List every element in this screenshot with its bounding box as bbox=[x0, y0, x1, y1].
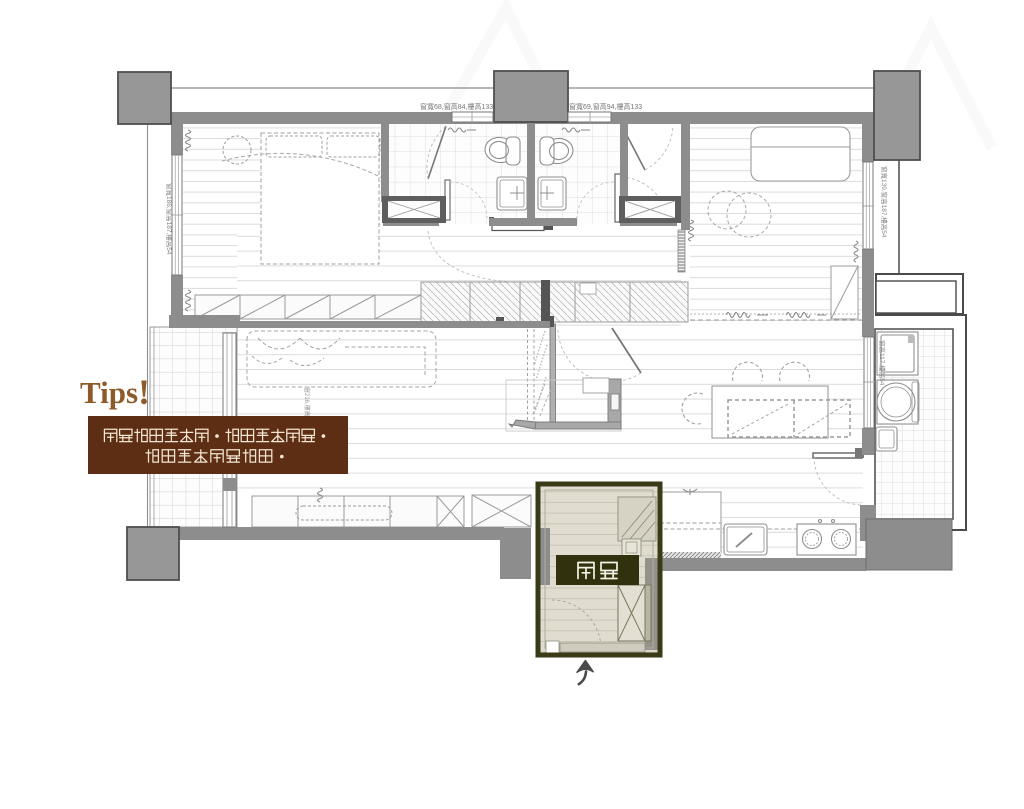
svg-text:窗寬139,窗高187,樓高54: 窗寬139,窗高187,樓高54 bbox=[880, 166, 889, 238]
svg-text:窗寬186,窗高187,樓高54: 窗寬186,窗高187,樓高54 bbox=[165, 183, 174, 255]
svg-text:窗寬69,窗高94,樓高133: 窗寬69,窗高94,樓高133 bbox=[569, 102, 642, 111]
svg-text:窗216,樓高: 窗216,樓高 bbox=[303, 387, 311, 417]
svg-text:Tips!: Tips! bbox=[80, 372, 150, 412]
svg-text:窗高117,樓高54: 窗高117,樓高54 bbox=[878, 340, 887, 386]
svg-text:窗寬68,窗高84,樓高133: 窗寬68,窗高84,樓高133 bbox=[420, 102, 493, 111]
